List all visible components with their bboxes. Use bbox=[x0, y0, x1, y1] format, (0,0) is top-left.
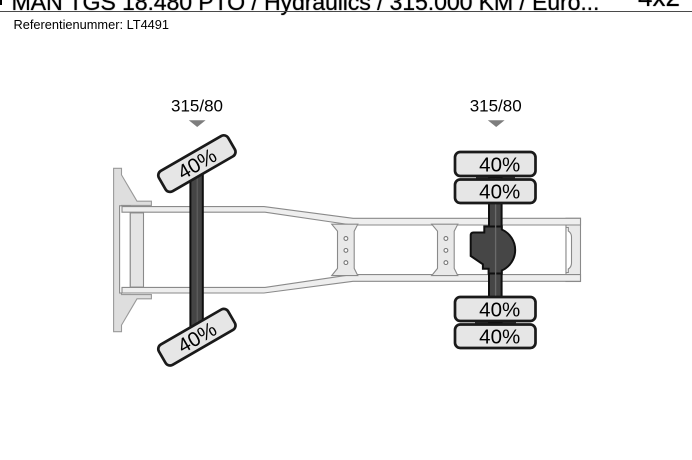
svg-text:40%: 40% bbox=[479, 180, 520, 203]
svg-text:315/80: 315/80 bbox=[171, 97, 223, 116]
svg-text:315/80: 315/80 bbox=[470, 97, 522, 116]
svg-text:40%: 40% bbox=[479, 298, 520, 321]
svg-text:40%: 40% bbox=[479, 325, 520, 348]
svg-text:40%: 40% bbox=[479, 153, 520, 176]
